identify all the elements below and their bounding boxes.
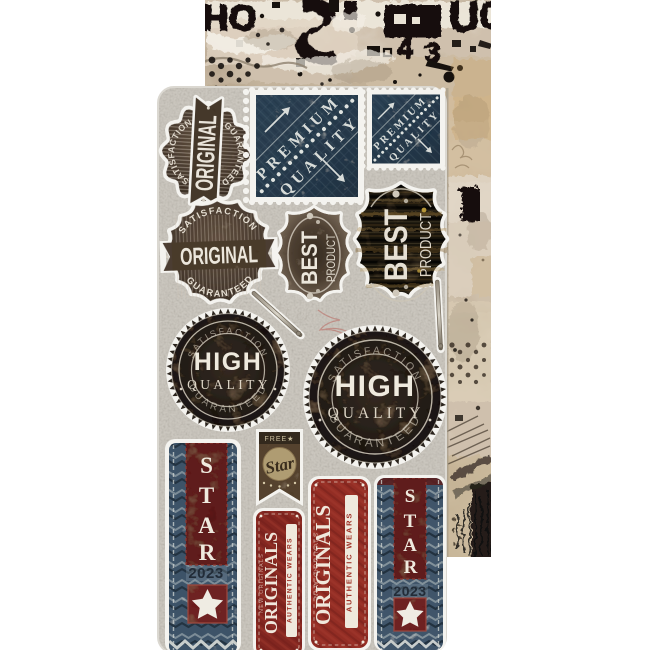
svg-text:HIGH: HIGH	[194, 348, 263, 376]
svg-text:QUALITY: QUALITY	[187, 377, 271, 392]
svg-text:AUTHENTIC WEARS: AUTHENTIC WEARS	[345, 512, 354, 612]
svg-text:FREE★: FREE★	[265, 435, 295, 443]
svg-text:BEST: BEST	[297, 230, 322, 285]
svg-text:2023: 2023	[188, 565, 223, 582]
svg-text:Gr: Gr	[296, 309, 310, 323]
svg-text:U: U	[448, 0, 478, 39]
svg-text:BEST: BEST	[378, 209, 414, 281]
svg-text:QUALITY: QUALITY	[328, 405, 425, 422]
svg-text:2023: 2023	[393, 583, 426, 599]
svg-text:PRODUCT: PRODUCT	[326, 234, 338, 282]
svg-text:4: 4	[396, 31, 413, 64]
svg-text:NEW ORIGINALS: NEW ORIGINALS	[259, 553, 265, 613]
svg-text:ORIGINAL: ORIGINAL	[180, 241, 259, 271]
svg-text:ORIGINAL: ORIGINAL	[191, 114, 223, 191]
svg-text:PRODUCT: PRODUCT	[418, 213, 435, 277]
svg-text:HIGH: HIGH	[335, 370, 416, 403]
svg-text:AUTHENTIC WEARS: AUTHENTIC WEARS	[287, 537, 294, 623]
svg-text:NEW ORIGINALS: NEW ORIGINALS	[314, 532, 320, 599]
